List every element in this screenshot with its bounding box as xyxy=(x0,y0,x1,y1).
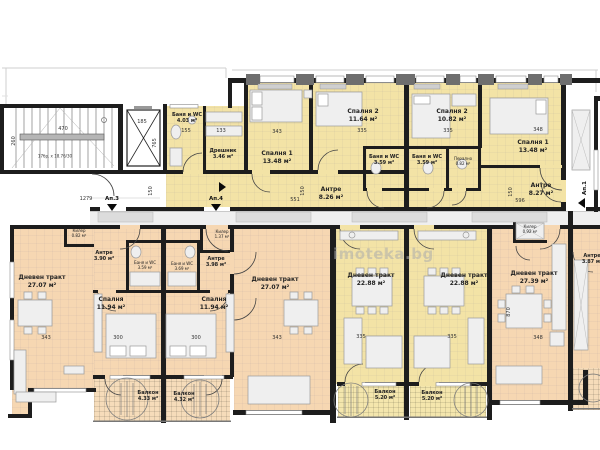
room-label-balcony-a: Балкон4.33 м² xyxy=(137,390,158,403)
dim-343-a: 343 xyxy=(41,335,51,341)
room-label-laundry: Перално0.82 м² xyxy=(454,156,472,166)
stair-note: 17бр. x 18.76/30 xyxy=(38,154,72,159)
dim-348-e: 348 xyxy=(533,335,543,341)
room-label-balcony-b: Балкон4.32 м² xyxy=(173,391,194,404)
dim-150-c: 150 xyxy=(148,186,154,196)
room-label-balcony-d: Балкон5.20 м² xyxy=(421,390,442,403)
plan-linework xyxy=(0,0,600,450)
room-label-balcony-c: Балкон5.20 м² xyxy=(374,389,395,402)
room-label-bath-403: Баня и WC4.03 м² xyxy=(172,112,202,125)
dim-343-b: 343 xyxy=(272,335,282,341)
dim-343-top: 343 xyxy=(272,129,282,135)
room-label-kiler-e: Килер0.92 м² xyxy=(523,224,538,234)
watermark: imoteka.bg xyxy=(333,245,434,263)
room-label-living-d: Дневен тракт22.88 м² xyxy=(440,272,487,287)
dim-335-c: 335 xyxy=(356,334,366,340)
room-label-antre-e: Антре3.87 м² xyxy=(582,253,600,266)
dim-155: 155 xyxy=(181,128,191,134)
apartment-marker-ap4: Ап.4 xyxy=(209,196,223,202)
stairs xyxy=(12,108,114,168)
dim-300-a: 300 xyxy=(113,335,123,341)
room-label-living-e: Дневен тракт27.39 м² xyxy=(510,270,557,285)
room-label-kiler-a: Килер0.82 м² xyxy=(72,228,87,238)
dim-470: 470 xyxy=(58,126,68,132)
ap4-arrow-icon xyxy=(211,204,221,211)
dim-348-top: 348 xyxy=(533,127,543,133)
room-label-bath-mid-left: Баня и WC3.59 м² xyxy=(369,154,399,167)
dim-150-b: 150 xyxy=(508,187,514,197)
room-label-bedroom1-left: Спалня 113.48 м² xyxy=(261,150,292,165)
dim-335-top2: 335 xyxy=(443,128,453,134)
dim-551: 551 xyxy=(290,197,300,203)
dim-300-b: 300 xyxy=(191,335,201,341)
dim-185: 185 xyxy=(137,119,147,125)
room-label-bedroom-a: Спалня11.94 м² xyxy=(97,296,126,311)
dim-596: 596 xyxy=(515,198,525,204)
room-label-kiler-b: Килер1.37 м² xyxy=(215,229,230,239)
room-label-antre-right: Антре8.27 м² xyxy=(529,182,553,197)
room-label-bedroom2-right: Спалня 210.82 м² xyxy=(436,108,467,123)
dim-335-top: 335 xyxy=(357,128,367,134)
apartment-marker-ap3: Ап.3 xyxy=(105,196,119,202)
room-label-bath-mid-right: Баня и WC3.59 м² xyxy=(412,154,442,167)
room-label-living-c: Дневен тракт22.88 м² xyxy=(347,272,394,287)
room-label-bedroom2-left: Спалня 211.64 м² xyxy=(347,108,378,123)
room-label-antre-left: Антре8.26 м² xyxy=(319,186,343,201)
room-label-dressing: Дрешник3.46 м² xyxy=(209,148,236,161)
apartment-marker-ap1: Ап.1 xyxy=(582,181,588,195)
ap1-arrow-icon xyxy=(578,198,585,208)
room-label-bedroom-b: Спалня11.94 м² xyxy=(200,296,229,311)
dim-870: 870 xyxy=(506,307,512,317)
ap4-entry-arrow-icon xyxy=(219,182,226,192)
room-label-bath-a: Баня и WC3.59 м² xyxy=(134,260,156,270)
dim-133: 133 xyxy=(216,128,226,134)
room-label-bedroom1-right: Спалня 113.48 м² xyxy=(517,139,548,154)
room-label-antre-a: Антре3.90 м² xyxy=(94,250,114,263)
room-label-bath-b: Баня и WC3.69 м² xyxy=(171,261,193,271)
dim-335-d: 335 xyxy=(447,334,457,340)
floor-plan: Баня и WC4.03 м² Дрешник3.46 м² Спалня 1… xyxy=(0,0,600,450)
room-label-living-b: Дневен тракт27.07 м² xyxy=(251,276,298,291)
dim-260: 260 xyxy=(11,136,17,146)
elevator xyxy=(127,106,160,166)
room-label-living-a: Дневен тракт27.07 м² xyxy=(18,274,65,289)
room-label-antre-b: Антре3.98 м² xyxy=(206,256,226,269)
dim-765: 765 xyxy=(152,138,158,148)
ap3-arrow-icon xyxy=(107,204,117,211)
dim-1279: 1279 xyxy=(80,196,93,202)
dim-150-a: 150 xyxy=(300,186,306,196)
